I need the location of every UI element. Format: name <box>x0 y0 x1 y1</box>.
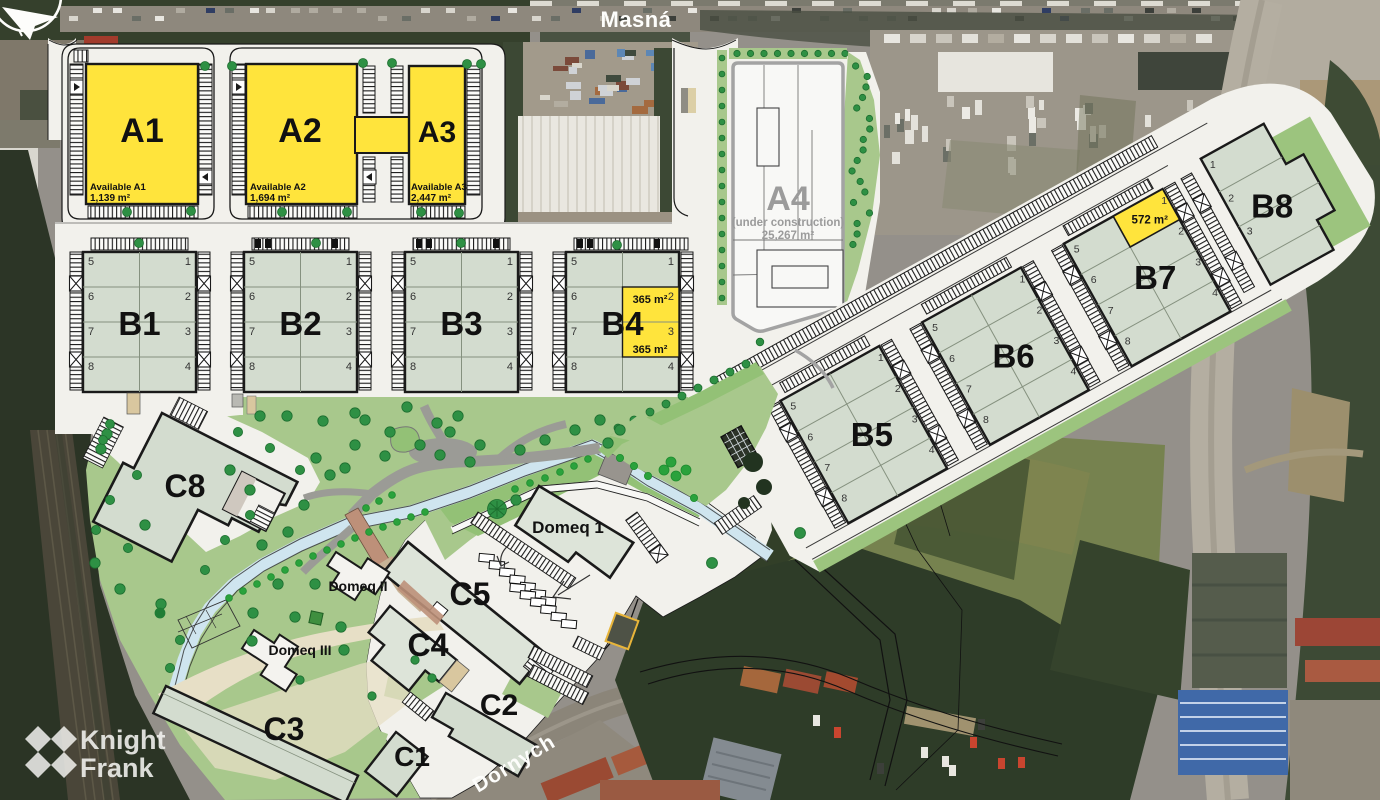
svg-text:4: 4 <box>507 361 513 373</box>
svg-text:B2: B2 <box>279 305 321 342</box>
svg-text:5: 5 <box>932 322 938 334</box>
svg-text:3: 3 <box>346 326 352 338</box>
svg-text:4: 4 <box>929 444 935 456</box>
svg-text:1: 1 <box>668 256 674 268</box>
svg-text:7: 7 <box>249 326 255 338</box>
svg-text:4: 4 <box>1070 366 1076 378</box>
svg-text:2: 2 <box>668 291 674 303</box>
svg-text:6: 6 <box>249 291 255 303</box>
svg-text:7: 7 <box>571 326 577 338</box>
svg-text:A1: A1 <box>120 112 163 150</box>
svg-text:Frank: Frank <box>80 753 155 783</box>
svg-text:8: 8 <box>249 361 255 373</box>
svg-text:5: 5 <box>571 256 577 268</box>
svg-text:7: 7 <box>966 383 972 395</box>
svg-text:Available A2: Available A2 <box>250 182 306 193</box>
svg-text:7: 7 <box>824 462 830 474</box>
svg-text:3: 3 <box>1053 335 1059 347</box>
svg-text:3: 3 <box>185 326 191 338</box>
svg-text:1,694 m²: 1,694 m² <box>250 193 291 204</box>
svg-text:2,447 m²: 2,447 m² <box>411 193 452 204</box>
svg-text:2: 2 <box>185 291 191 303</box>
svg-text:7: 7 <box>1108 305 1114 317</box>
svg-text:1: 1 <box>1020 274 1026 286</box>
svg-text:8: 8 <box>983 414 989 426</box>
svg-text:(under construction): (under construction) <box>732 217 845 229</box>
svg-text:B8: B8 <box>1251 187 1293 224</box>
svg-text:5: 5 <box>249 256 255 268</box>
svg-text:2: 2 <box>1178 226 1184 238</box>
svg-text:1: 1 <box>185 256 191 268</box>
svg-text:1: 1 <box>507 256 513 268</box>
svg-text:Domeq II: Domeq II <box>328 578 387 594</box>
svg-text:4: 4 <box>668 361 674 373</box>
svg-text:2: 2 <box>346 291 352 303</box>
svg-text:6: 6 <box>807 431 813 443</box>
svg-text:B6: B6 <box>992 338 1034 375</box>
svg-text:572 m²: 572 m² <box>1132 215 1169 227</box>
svg-text:3: 3 <box>507 326 513 338</box>
svg-text:1,139 m²: 1,139 m² <box>90 193 131 204</box>
svg-text:8: 8 <box>410 361 416 373</box>
svg-text:3: 3 <box>1195 256 1201 268</box>
svg-text:C1: C1 <box>394 741 430 772</box>
svg-text:365 m²: 365 m² <box>633 344 668 356</box>
svg-text:365 m²: 365 m² <box>633 294 668 306</box>
svg-text:3: 3 <box>912 413 918 425</box>
svg-text:Available A1: Available A1 <box>90 182 147 193</box>
svg-text:8: 8 <box>1125 335 1131 347</box>
svg-text:8: 8 <box>841 493 847 505</box>
svg-text:B1: B1 <box>118 305 160 342</box>
svg-text:Masná: Masná <box>601 7 672 32</box>
svg-text:5: 5 <box>790 401 796 413</box>
svg-text:3: 3 <box>1247 226 1253 238</box>
svg-text:1: 1 <box>878 352 884 364</box>
svg-text:C3: C3 <box>264 711 305 747</box>
svg-text:3: 3 <box>668 326 674 338</box>
svg-text:6: 6 <box>949 353 955 365</box>
svg-text:6: 6 <box>571 291 577 303</box>
svg-text:1: 1 <box>1210 159 1216 171</box>
svg-text:Domeq 1: Domeq 1 <box>532 518 604 537</box>
svg-text:C2: C2 <box>480 689 518 722</box>
svg-text:8: 8 <box>571 361 577 373</box>
svg-text:1: 1 <box>1161 195 1167 207</box>
svg-text:7: 7 <box>88 326 94 338</box>
svg-text:6: 6 <box>88 291 94 303</box>
svg-text:5: 5 <box>1074 244 1080 256</box>
svg-text:C8: C8 <box>165 468 206 504</box>
svg-text:1: 1 <box>346 256 352 268</box>
svg-text:C5: C5 <box>450 576 491 612</box>
svg-text:5: 5 <box>410 256 416 268</box>
svg-text:25,267 m²: 25,267 m² <box>762 230 815 242</box>
svg-text:6: 6 <box>1091 274 1097 286</box>
svg-text:2: 2 <box>895 383 901 395</box>
svg-text:2: 2 <box>1228 192 1234 204</box>
svg-text:4: 4 <box>1212 287 1218 299</box>
svg-text:Available A3: Available A3 <box>411 182 467 193</box>
svg-text:7: 7 <box>410 326 416 338</box>
svg-text:B7: B7 <box>1134 259 1176 296</box>
svg-text:B3: B3 <box>440 305 482 342</box>
svg-text:Domeq III: Domeq III <box>268 642 331 658</box>
svg-text:B5: B5 <box>851 416 893 453</box>
svg-text:A4: A4 <box>766 180 810 218</box>
svg-text:2: 2 <box>507 291 513 303</box>
svg-text:A2: A2 <box>278 112 321 150</box>
svg-text:Knight: Knight <box>80 725 165 755</box>
svg-text:2: 2 <box>1037 304 1043 316</box>
svg-text:4: 4 <box>185 361 191 373</box>
svg-text:8: 8 <box>88 361 94 373</box>
svg-text:6: 6 <box>410 291 416 303</box>
svg-text:4: 4 <box>346 361 352 373</box>
svg-text:A3: A3 <box>418 116 456 149</box>
svg-text:5: 5 <box>88 256 94 268</box>
